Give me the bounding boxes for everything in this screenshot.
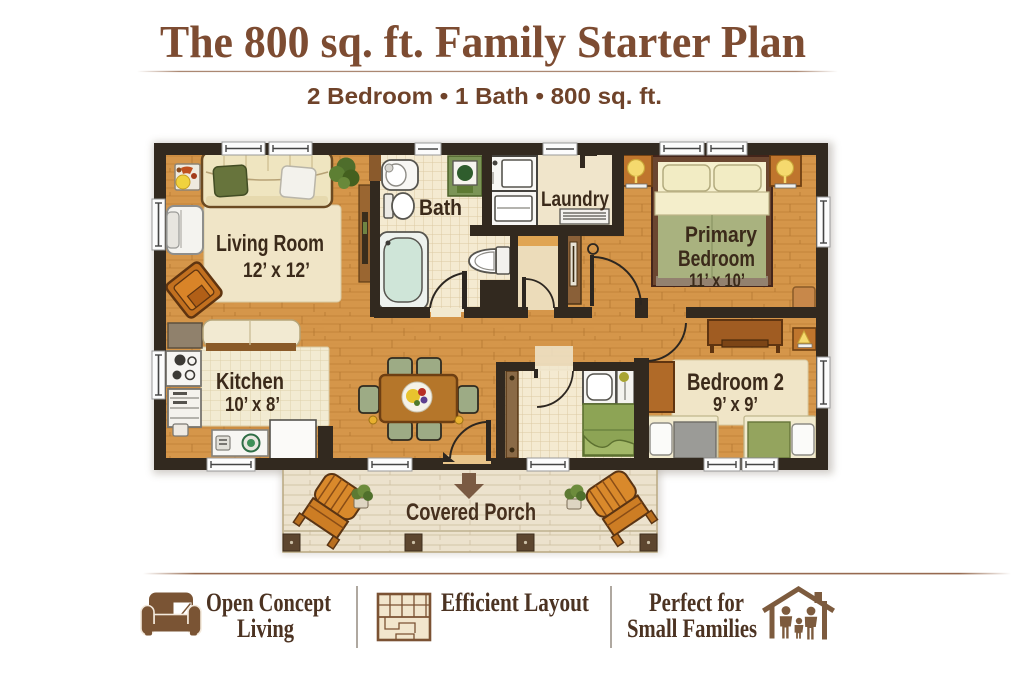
svg-text:Perfect for: Perfect for [649, 588, 744, 617]
svg-text:11’ x 10’: 11’ x 10’ [689, 271, 745, 292]
svg-text:Bedroom 2: Bedroom 2 [687, 369, 784, 396]
svg-text:Small Families: Small Families [627, 614, 757, 643]
svg-text:Laundry: Laundry [541, 188, 609, 211]
svg-text:Open Concept: Open Concept [206, 588, 331, 617]
svg-text:12’ x 12’: 12’ x 12’ [243, 259, 310, 282]
svg-text:9’ x 9’: 9’ x 9’ [713, 394, 758, 416]
svg-text:10’ x 8’: 10’ x 8’ [225, 394, 280, 416]
svg-text:Primary: Primary [685, 222, 758, 247]
svg-text:Living Room: Living Room [216, 230, 324, 256]
svg-text:2 Bedroom • 1 Bath • 800 sq. f: 2 Bedroom • 1 Bath • 800 sq. ft. [307, 83, 662, 109]
svg-text:Efficient Layout: Efficient Layout [441, 588, 589, 617]
svg-text:Living: Living [237, 614, 294, 643]
svg-text:Bedroom: Bedroom [678, 246, 755, 271]
svg-text:Bath: Bath [419, 195, 462, 220]
svg-text:Covered Porch: Covered Porch [406, 499, 536, 526]
svg-text:The 800 sq. ft. Family Starter: The 800 sq. ft. Family Starter Plan [160, 17, 806, 67]
svg-text:Kitchen: Kitchen [216, 368, 284, 394]
